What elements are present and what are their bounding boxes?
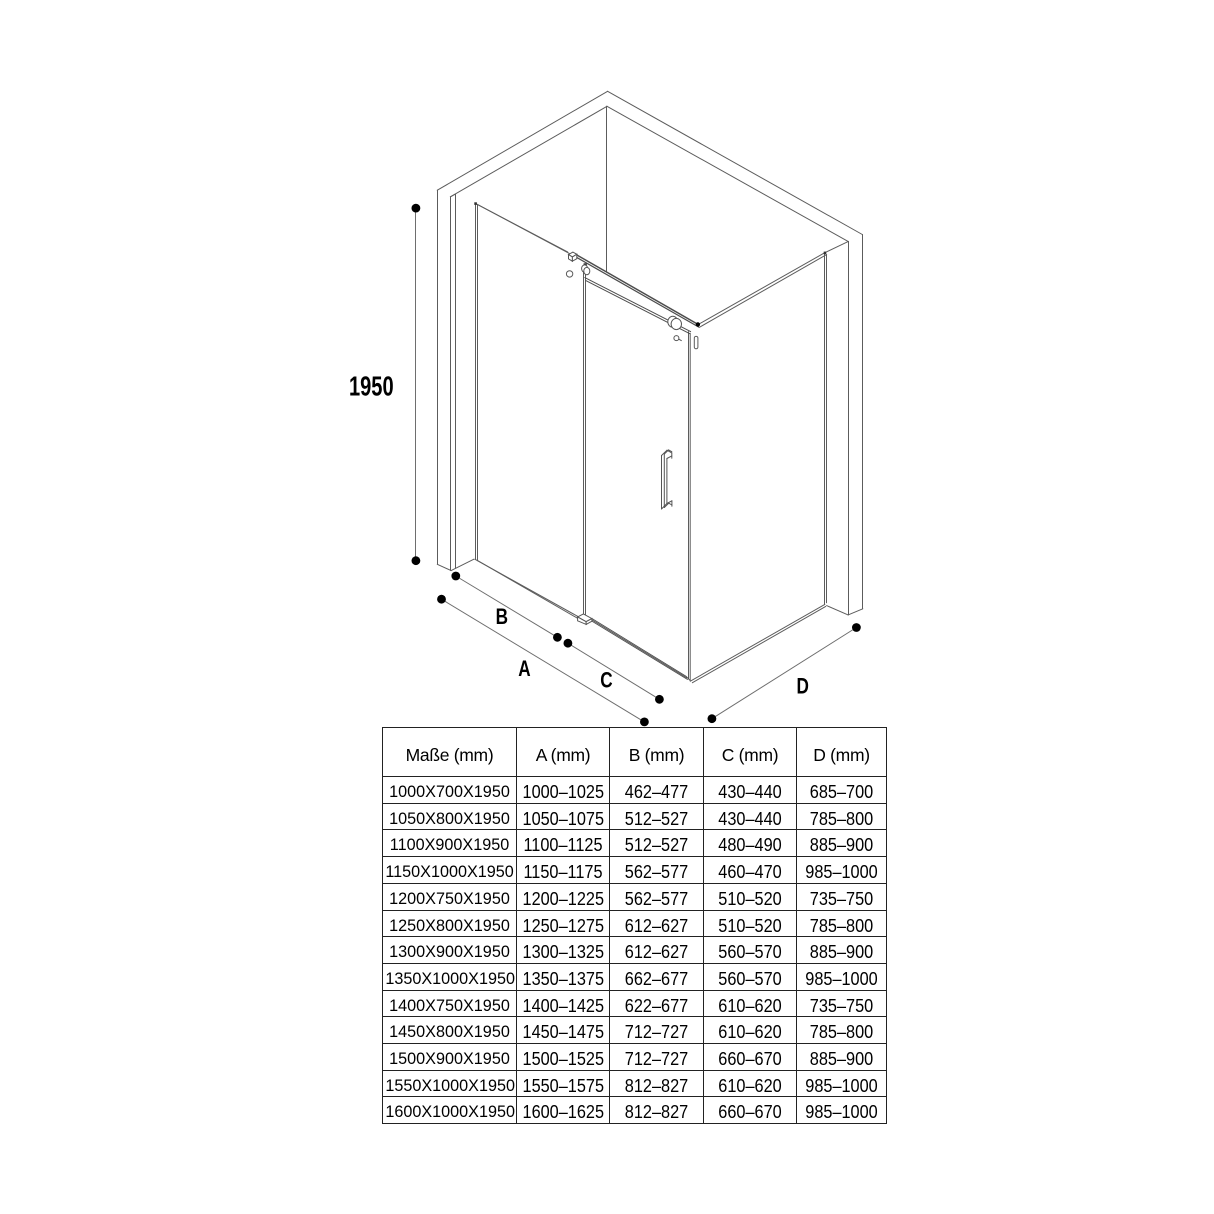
svg-text:C: C [600, 668, 612, 693]
svg-text:1950: 1950 [349, 371, 394, 402]
svg-text:D: D [797, 674, 809, 699]
svg-text:A: A [518, 657, 530, 682]
svg-text:B: B [496, 605, 508, 630]
